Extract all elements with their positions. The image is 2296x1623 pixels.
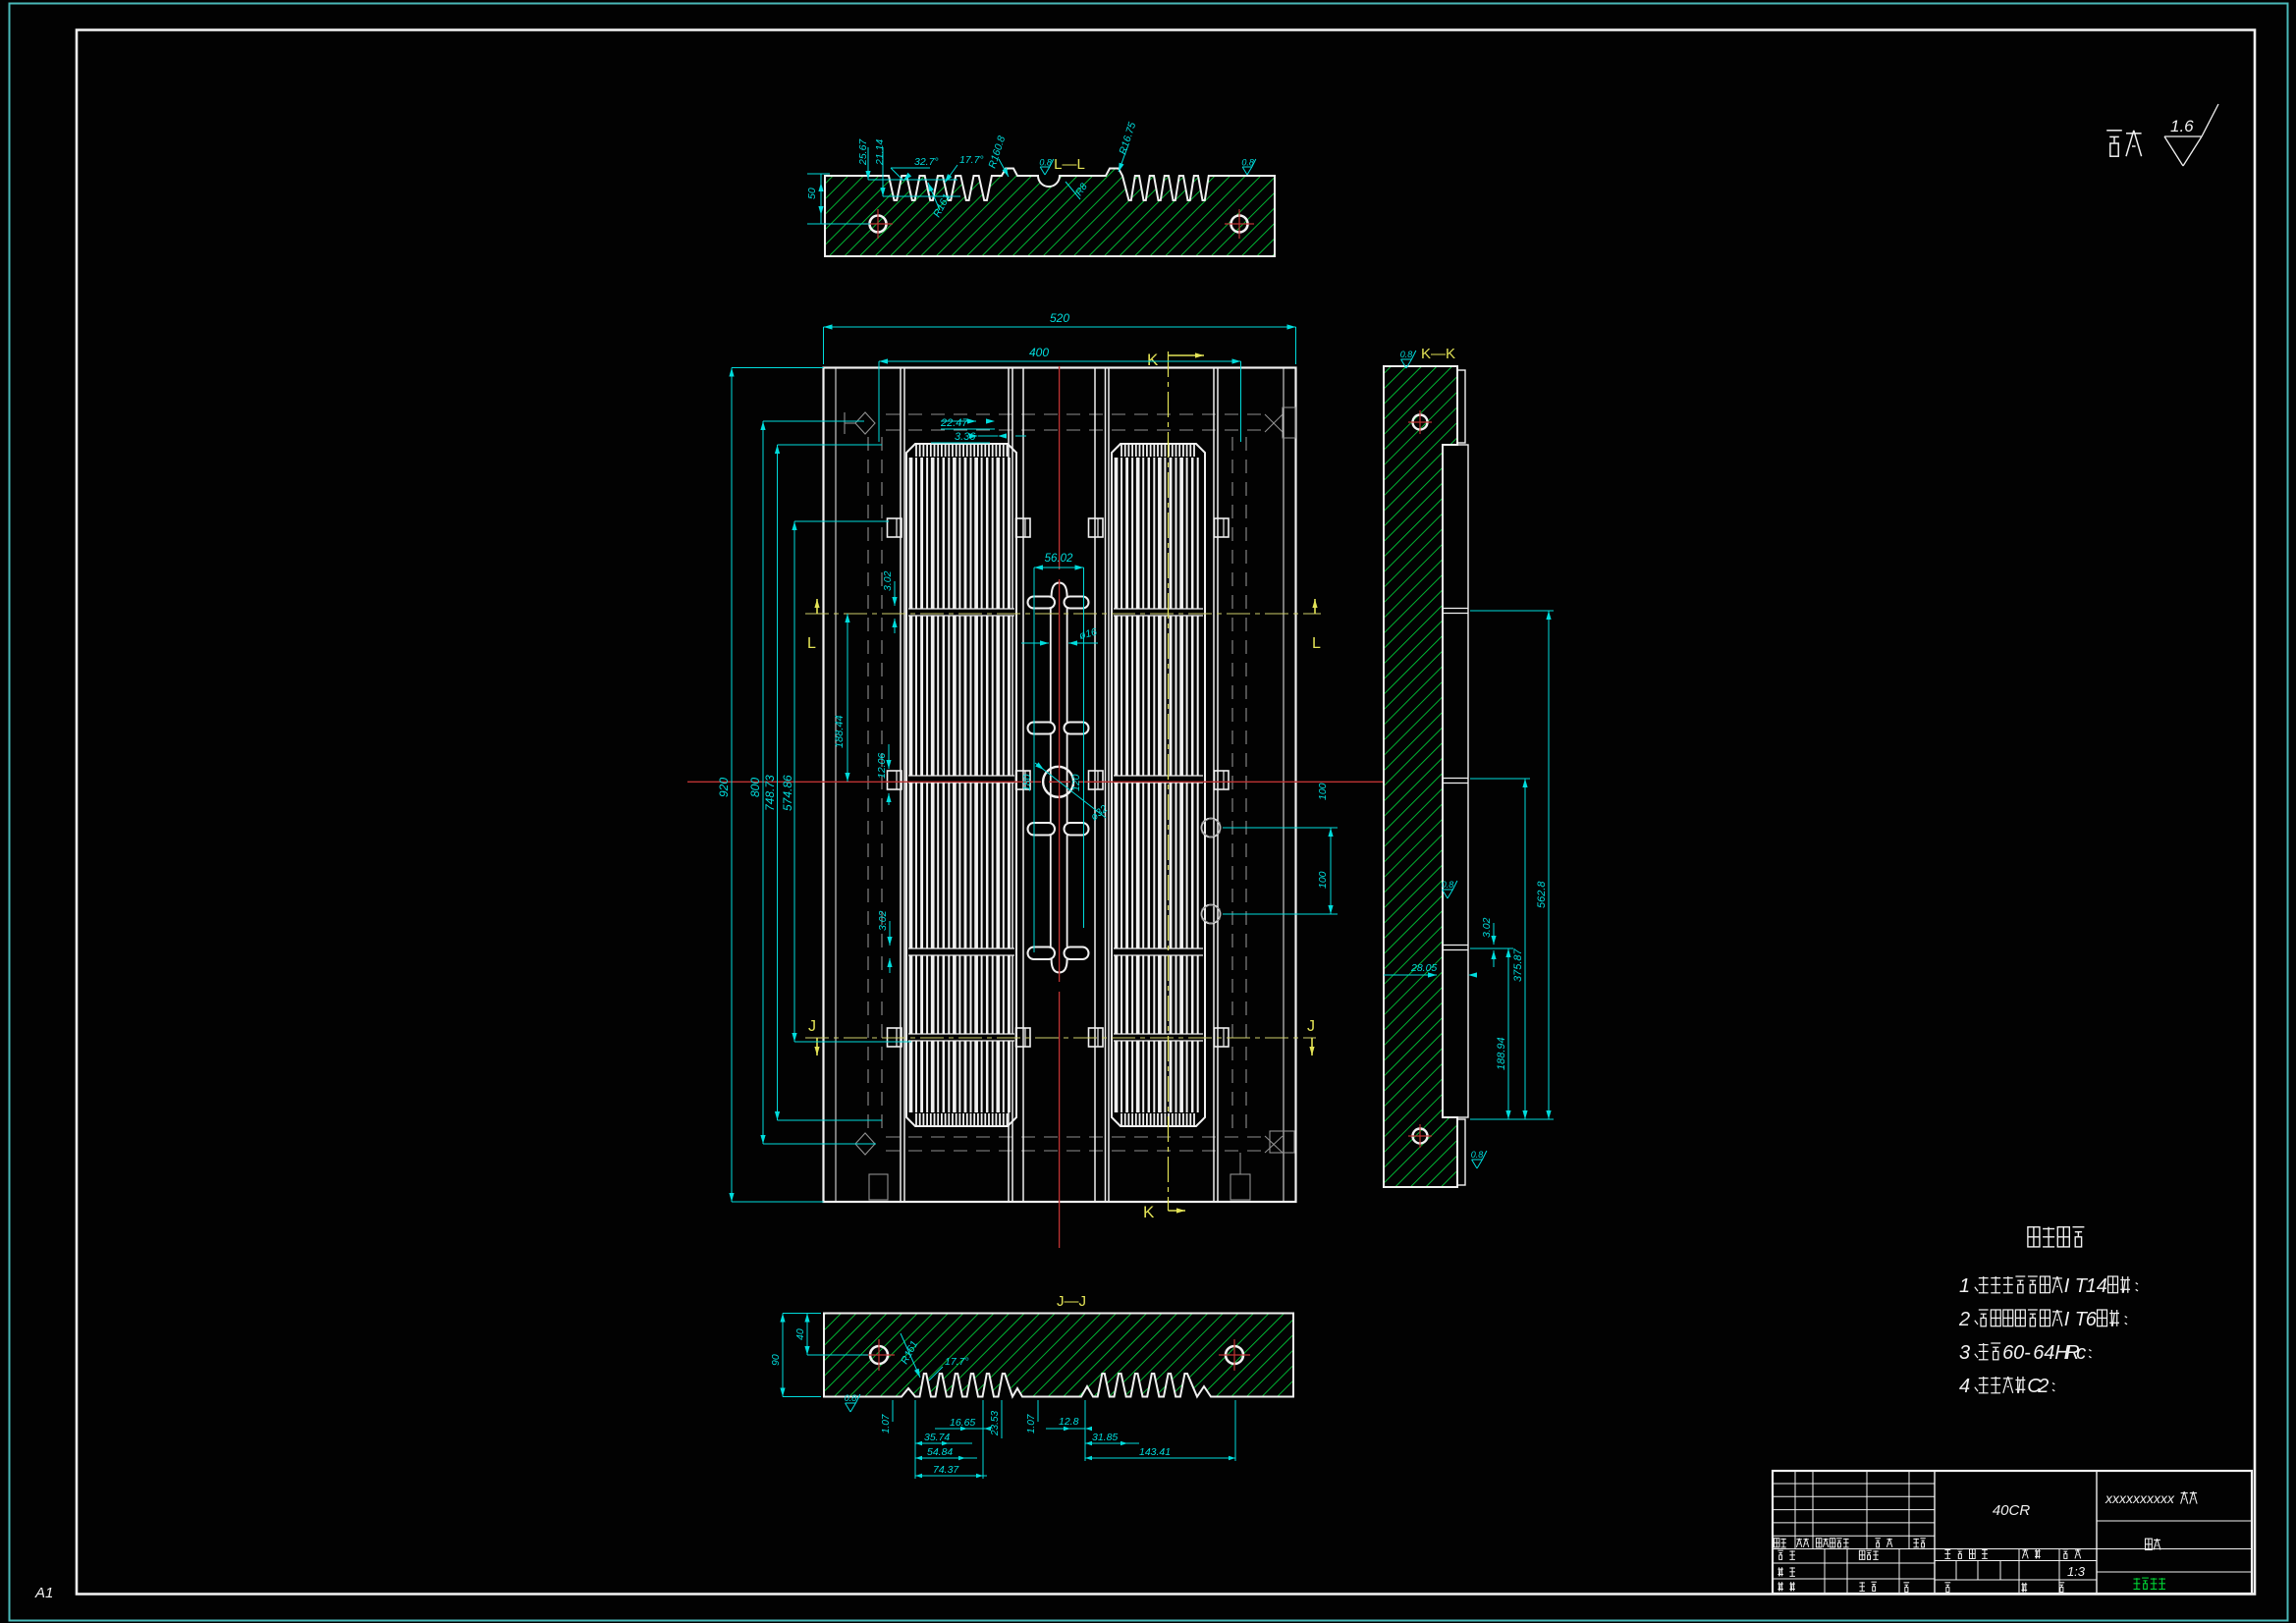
svg-text:28.05: 28.05 (1410, 962, 1437, 974)
svg-text:1.07: 1.07 (1026, 1414, 1037, 1434)
svg-text:L: L (807, 635, 816, 652)
svg-text:31.85: 31.85 (1092, 1432, 1118, 1443)
svg-text:120: 120 (1070, 774, 1082, 791)
svg-text:574.86: 574.86 (781, 775, 794, 811)
svg-text:1.6: 1.6 (2170, 117, 2194, 135)
svg-text:143.41: 143.41 (1139, 1446, 1171, 1458)
svg-text:4: 4 (2097, 1275, 2107, 1297)
svg-text:16.65: 16.65 (950, 1417, 975, 1429)
svg-text:17.7°: 17.7° (945, 1356, 969, 1368)
svg-text:L: L (1312, 635, 1321, 652)
svg-text:0: 0 (2013, 1342, 2024, 1364)
svg-text:0.8: 0.8 (1400, 350, 1413, 359)
svg-text:56.02: 56.02 (1045, 553, 1073, 565)
svg-text:74.37: 74.37 (933, 1464, 959, 1476)
svg-text:-: - (2024, 1342, 2031, 1364)
svg-text:188.94: 188.94 (1496, 1037, 1507, 1070)
svg-text:180: 180 (1021, 774, 1033, 791)
svg-text:2: 2 (1958, 1309, 1970, 1330)
svg-text:35.74: 35.74 (924, 1432, 950, 1443)
svg-text:0.8: 0.8 (1442, 880, 1454, 890)
svg-text:0.8: 0.8 (845, 1393, 857, 1403)
svg-text:xxxxxxxxxx: xxxxxxxxxx (2105, 1490, 2175, 1506)
svg-text:920: 920 (717, 778, 731, 797)
svg-text:32.7°: 32.7° (914, 156, 939, 168)
svg-text:90: 90 (770, 1354, 782, 1366)
svg-text:3.02: 3.02 (877, 910, 889, 931)
svg-text:40: 40 (794, 1328, 806, 1340)
svg-text:J: J (1307, 1018, 1315, 1035)
svg-text:400: 400 (1029, 346, 1049, 359)
svg-text:1:3: 1:3 (2067, 1564, 2086, 1579)
svg-text:4: 4 (1959, 1376, 1970, 1397)
svg-text:3.02: 3.02 (1481, 917, 1493, 938)
svg-text:L—L: L—L (1054, 156, 1085, 173)
svg-text:K: K (1147, 351, 1159, 369)
svg-text:40CR: 40CR (1993, 1502, 2031, 1519)
svg-text:0.8: 0.8 (1241, 157, 1254, 167)
svg-text:562.8: 562.8 (1536, 881, 1548, 908)
svg-text:100: 100 (1317, 871, 1329, 889)
svg-text:1.07: 1.07 (881, 1414, 892, 1434)
svg-text:375.87: 375.87 (1512, 947, 1524, 982)
svg-text:J—J: J—J (1057, 1293, 1086, 1310)
svg-text:1: 1 (2086, 1275, 2097, 1297)
svg-text:520: 520 (1050, 311, 1069, 325)
svg-text:748.73: 748.73 (763, 775, 777, 811)
svg-text:100: 100 (1317, 783, 1329, 800)
svg-text:J: J (808, 1018, 816, 1035)
svg-text:17.7°: 17.7° (959, 154, 984, 166)
svg-text:2: 2 (2037, 1376, 2049, 1397)
svg-text:0.8: 0.8 (1471, 1150, 1484, 1160)
svg-text:K—K: K—K (1421, 346, 1455, 362)
svg-text:22.47: 22.47 (940, 417, 968, 429)
svg-text:6: 6 (2086, 1309, 2098, 1330)
svg-text:54.84: 54.84 (927, 1446, 953, 1458)
svg-text:I: I (2064, 1275, 2070, 1297)
svg-text:3: 3 (1959, 1342, 1970, 1364)
svg-text:I: I (2064, 1309, 2070, 1330)
svg-text:12.06: 12.06 (876, 753, 888, 779)
svg-text:25.67: 25.67 (857, 138, 869, 166)
svg-text:c: c (2076, 1342, 2086, 1364)
svg-text:12.8: 12.8 (1059, 1416, 1079, 1428)
svg-text:23.53: 23.53 (990, 1411, 1001, 1436)
svg-text:800: 800 (748, 778, 762, 797)
svg-text:21.14: 21.14 (874, 139, 886, 166)
svg-text:50: 50 (806, 188, 818, 199)
svg-text:4: 4 (2044, 1342, 2054, 1364)
svg-text:K: K (1143, 1203, 1155, 1221)
svg-text:188.44: 188.44 (834, 715, 846, 748)
svg-text:A1: A1 (34, 1585, 53, 1601)
svg-text:1: 1 (1959, 1275, 1970, 1297)
svg-text:3.02: 3.02 (882, 570, 894, 591)
svg-text:0.8: 0.8 (1039, 157, 1052, 167)
